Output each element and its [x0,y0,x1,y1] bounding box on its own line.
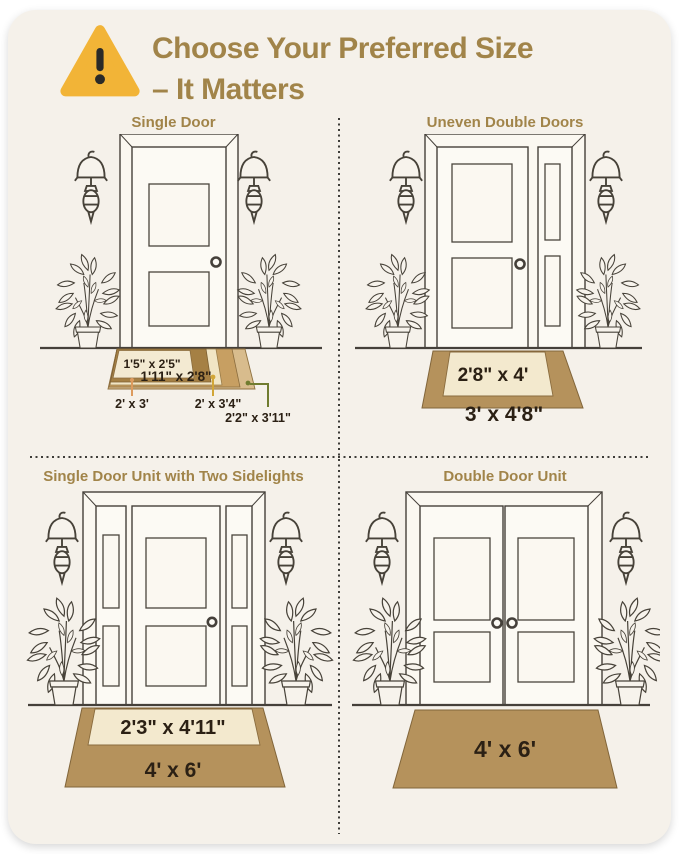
mat-label-inner: 2'3" x 4'11" [120,717,225,739]
quadrant-divider-horizontal [30,456,649,458]
single-door-sidelights-illustration: 2'3" x 4'11" 4' x 6' [20,490,340,792]
mat-stack: 1'5" x 2'5" 1'11" x 2'8" 2' x 3' 2' x 3'… [108,349,291,425]
potted-plant-icon-left [366,255,430,348]
quadrant-single-door-sidelights: Single Door Unit with Two Sidelights [8,468,339,844]
potted-plant-icon-right [260,598,333,705]
mat-label-size-2: 1'11" x 2'8" [140,369,211,384]
uneven-double-doors-illustration: 2'8" x 4' 3' x 4'8" [340,134,660,434]
wall-lamp-icon-left [75,152,107,222]
single-door-illustration: 1'5" x 2'5" 1'11" x 2'8" 2' x 3' 2' x 3'… [20,134,340,434]
potted-plant-icon-right [238,255,302,348]
mat-label-inner: 2'8" x 4' [458,365,529,386]
quadrant-title-sidelights: Single Door Unit with Two Sidelights [8,468,339,485]
wall-lamp-icon-right [610,513,642,583]
double-door-illustration: 4' x 6' [340,490,660,792]
door-knob-left [493,619,502,628]
quadrant-uneven-double-doors: Uneven Double Doors 2'8 [339,114,671,456]
quadrant-title-uneven-double: Uneven Double Doors [339,114,671,131]
potted-plant-icon-left [56,255,120,348]
leader-dot-olive [246,381,251,386]
door-knob-right [508,619,517,628]
mat-label-size-3: 2' x 3' [115,397,149,411]
quadrant-single-door: Single Door 1'5" x 2'5" [8,114,339,456]
mat-stack: 2'8" x 4' 3' x 4'8" [422,351,583,426]
potted-plant-icon-right [594,598,660,705]
mat-label-size-4: 2' x 3'4" [195,397,242,411]
wall-lamp-icon-right [238,152,270,222]
door-knob [212,258,221,267]
wall-lamp-icon-left [46,513,78,583]
quadrant-double-door: Double Door Unit 4' x 6 [339,468,671,844]
warning-triangle-icon [60,24,140,104]
door-knob [208,618,216,626]
door-frame-single [120,134,238,348]
door-frame-sidelights [83,492,265,705]
mat-label-outer: 4' x 6' [474,736,536,762]
mat-label-size-5: 2'2" x 3'11" [225,411,291,425]
door-frame-uneven [425,134,585,348]
door-frame-double [406,492,602,705]
potted-plant-icon-right [577,255,641,348]
mat-stack: 4' x 6' [393,710,617,788]
page-title: Choose Your Preferred Size – It Matters [152,28,533,110]
quadrant-title-single-door: Single Door [8,114,339,131]
infographic-card: Choose Your Preferred Size – It Matters … [8,10,671,844]
quadrant-title-double-door: Double Door Unit [339,468,671,485]
mat-stack: 2'3" x 4'11" 4' x 6' [65,708,285,787]
wall-lamp-icon-right [590,152,622,222]
mat-label-outer: 3' x 4'8" [465,403,543,426]
wall-lamp-icon-left [390,152,422,222]
door-knob [516,260,525,269]
page-title-line2: – It Matters [152,69,533,110]
page-title-line1: Choose Your Preferred Size [152,28,533,69]
wall-lamp-icon-right [270,513,302,583]
mat-label-outer: 4' x 6' [145,759,202,782]
wall-lamp-icon-left [366,513,398,583]
